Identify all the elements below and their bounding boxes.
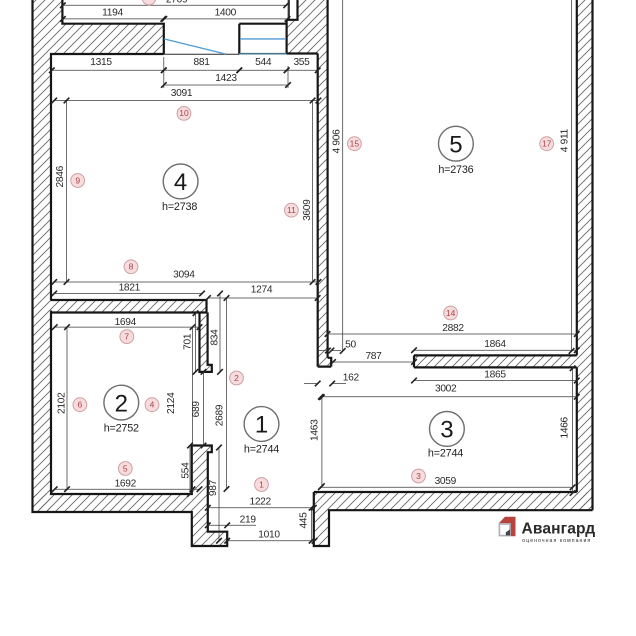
svg-text:4: 4 (174, 169, 187, 196)
svg-text:2846: 2846 (55, 165, 66, 187)
svg-text:1423: 1423 (215, 73, 237, 84)
svg-text:2: 2 (234, 373, 239, 383)
svg-text:1010: 1010 (258, 529, 280, 540)
svg-text:1466: 1466 (560, 416, 571, 438)
svg-text:1694: 1694 (115, 317, 137, 328)
svg-text:Авангард: Авангард (522, 520, 596, 537)
svg-text:h=2752: h=2752 (104, 423, 139, 435)
svg-text:2709: 2709 (166, 0, 188, 6)
svg-text:10: 10 (179, 108, 189, 118)
svg-text:355: 355 (293, 57, 310, 68)
svg-text:1400: 1400 (215, 8, 237, 19)
svg-text:h=2736: h=2736 (438, 164, 473, 176)
svg-text:544: 544 (255, 57, 272, 68)
svg-text:3: 3 (440, 417, 453, 444)
svg-text:h=2744: h=2744 (428, 447, 463, 459)
svg-text:787: 787 (365, 351, 382, 362)
svg-text:h=2738: h=2738 (162, 201, 197, 213)
svg-text:1: 1 (255, 412, 268, 439)
svg-text:8: 8 (129, 262, 134, 272)
svg-text:2689: 2689 (215, 404, 226, 426)
svg-text:7: 7 (124, 331, 129, 341)
svg-text:4 906: 4 906 (331, 129, 342, 154)
svg-text:1: 1 (259, 479, 264, 489)
svg-text:h=2744: h=2744 (244, 443, 279, 455)
svg-text:4: 4 (150, 400, 155, 410)
svg-text:3: 3 (416, 471, 421, 481)
svg-text:3059: 3059 (435, 476, 457, 487)
svg-text:5: 5 (123, 463, 128, 473)
svg-text:1194: 1194 (102, 8, 123, 19)
svg-text:9: 9 (75, 175, 80, 185)
svg-text:219: 219 (240, 514, 257, 525)
svg-text:689: 689 (191, 401, 202, 418)
svg-text:1864: 1864 (484, 339, 506, 350)
svg-text:6: 6 (78, 400, 83, 410)
svg-text:2102: 2102 (56, 392, 67, 414)
svg-text:1274: 1274 (251, 284, 273, 295)
svg-text:3609: 3609 (302, 199, 313, 221)
svg-text:1692: 1692 (115, 478, 137, 489)
svg-text:15: 15 (350, 139, 360, 149)
svg-text:3002: 3002 (435, 384, 457, 395)
svg-text:834: 834 (210, 329, 221, 346)
svg-text:5: 5 (449, 131, 462, 158)
svg-text:554: 554 (181, 462, 192, 479)
svg-text:3094: 3094 (173, 270, 195, 281)
svg-text:701: 701 (183, 333, 194, 350)
svg-text:3091: 3091 (171, 88, 193, 99)
svg-text:2: 2 (115, 390, 128, 417)
svg-text:1315: 1315 (90, 57, 112, 68)
svg-text:2882: 2882 (442, 323, 464, 334)
svg-text:17: 17 (542, 139, 552, 149)
svg-text:1463: 1463 (309, 419, 320, 441)
svg-text:1821: 1821 (119, 282, 141, 293)
svg-text:50: 50 (345, 339, 356, 350)
svg-text:2124: 2124 (166, 392, 177, 414)
svg-text:14: 14 (446, 308, 456, 318)
svg-text:11: 11 (287, 205, 296, 215)
svg-text:1222: 1222 (249, 496, 271, 507)
svg-text:1865: 1865 (484, 370, 506, 381)
svg-text:987: 987 (208, 479, 219, 496)
svg-text:881: 881 (194, 57, 211, 68)
svg-text:4 911: 4 911 (560, 128, 571, 152)
svg-text:162: 162 (343, 372, 360, 383)
svg-text:445: 445 (298, 512, 309, 529)
svg-text:оценочная компания: оценочная компания (522, 538, 591, 544)
